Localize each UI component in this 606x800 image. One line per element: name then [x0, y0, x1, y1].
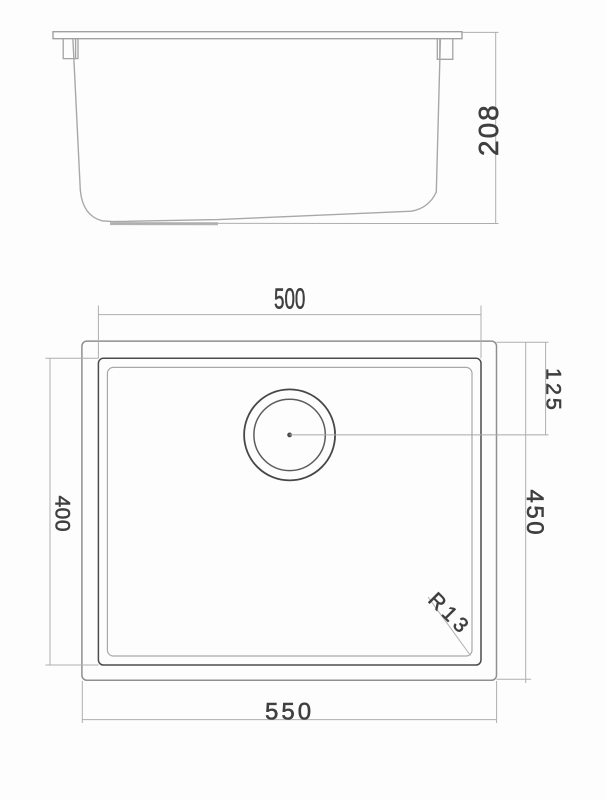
- svg-text:400: 400: [51, 496, 74, 533]
- svg-text:208: 208: [473, 103, 504, 156]
- svg-text:125: 125: [542, 368, 566, 413]
- svg-text:R13: R13: [423, 588, 475, 640]
- svg-text:500: 500: [274, 284, 305, 316]
- svg-text:550: 550: [265, 699, 314, 726]
- svg-text:450: 450: [521, 490, 548, 538]
